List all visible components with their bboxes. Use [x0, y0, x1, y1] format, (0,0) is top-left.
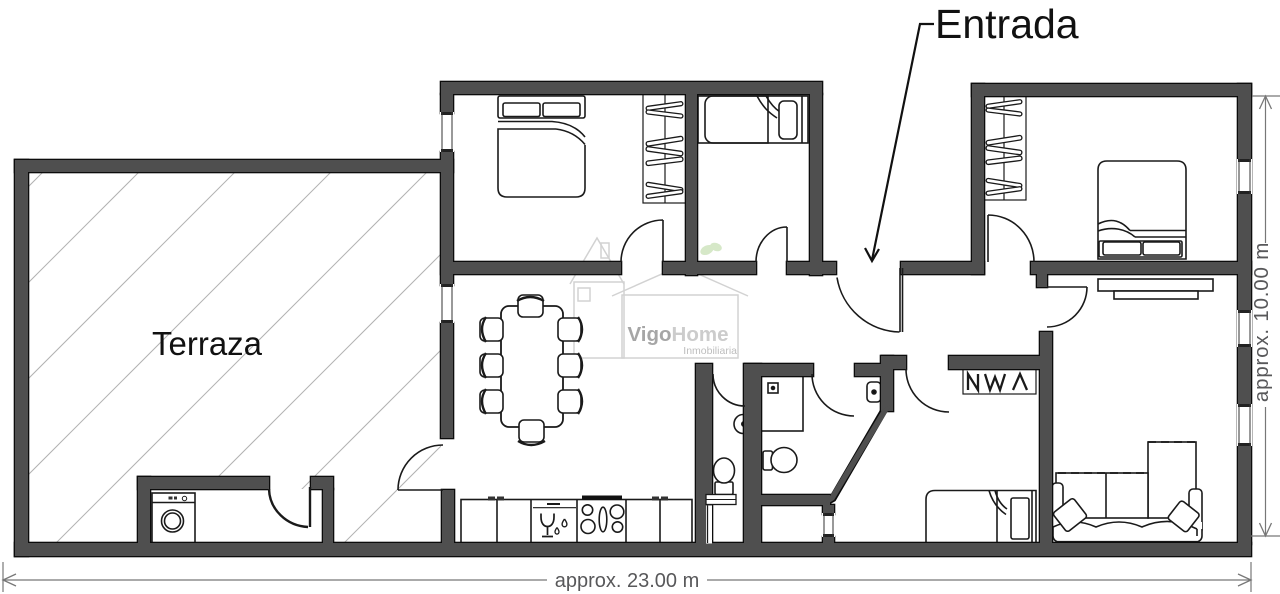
svg-text:Terraza: Terraza [152, 325, 263, 362]
svg-text:approx. 23.00 m: approx. 23.00 m [555, 570, 700, 592]
svg-text:approx. 10.00 m: approx. 10.00 m [1250, 242, 1273, 402]
svg-text:Entrada: Entrada [935, 1, 1079, 47]
svg-text:VigoHome: VigoHome [628, 323, 729, 346]
svg-text:Inmobiliaria: Inmobiliaria [683, 345, 737, 357]
